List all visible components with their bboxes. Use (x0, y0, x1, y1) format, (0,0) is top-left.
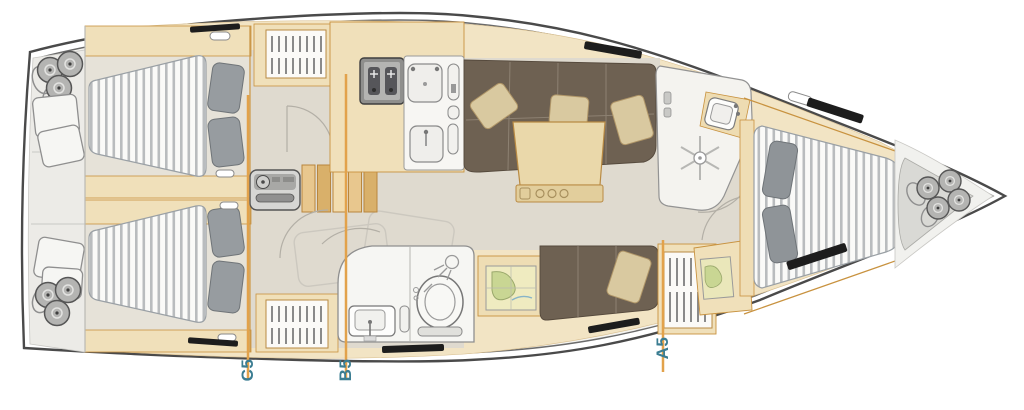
sink-icon (408, 64, 442, 102)
stove-burners-icon (360, 58, 404, 104)
pillow-icon (207, 206, 245, 258)
galley (330, 22, 464, 172)
saloon-sofa-starboard (540, 246, 658, 320)
pillow-icon (207, 116, 245, 168)
floor-plan-drawing (0, 0, 1024, 410)
sink-icon (349, 306, 395, 341)
chart-map-icon (700, 257, 733, 299)
engine-icon (250, 170, 300, 210)
aft-head (338, 246, 474, 342)
sink-icon (410, 126, 443, 162)
yacht-floor-plan: C5 B5 A5 (0, 0, 1024, 410)
saloon-table (513, 122, 605, 202)
pillow-icon (207, 62, 245, 114)
section-label-b5: B5 (336, 352, 356, 388)
louver-vent-icon (254, 24, 334, 86)
chart-map-icon (486, 266, 536, 310)
louver-vent-icon (256, 294, 338, 352)
cushion-icon (37, 124, 86, 168)
section-label-c5: C5 (238, 352, 258, 388)
toilet-icon (417, 276, 463, 336)
section-label-a5: A5 (653, 330, 673, 366)
nav-station (478, 256, 542, 316)
pillow-icon (207, 260, 245, 314)
bow-locker (895, 140, 993, 268)
